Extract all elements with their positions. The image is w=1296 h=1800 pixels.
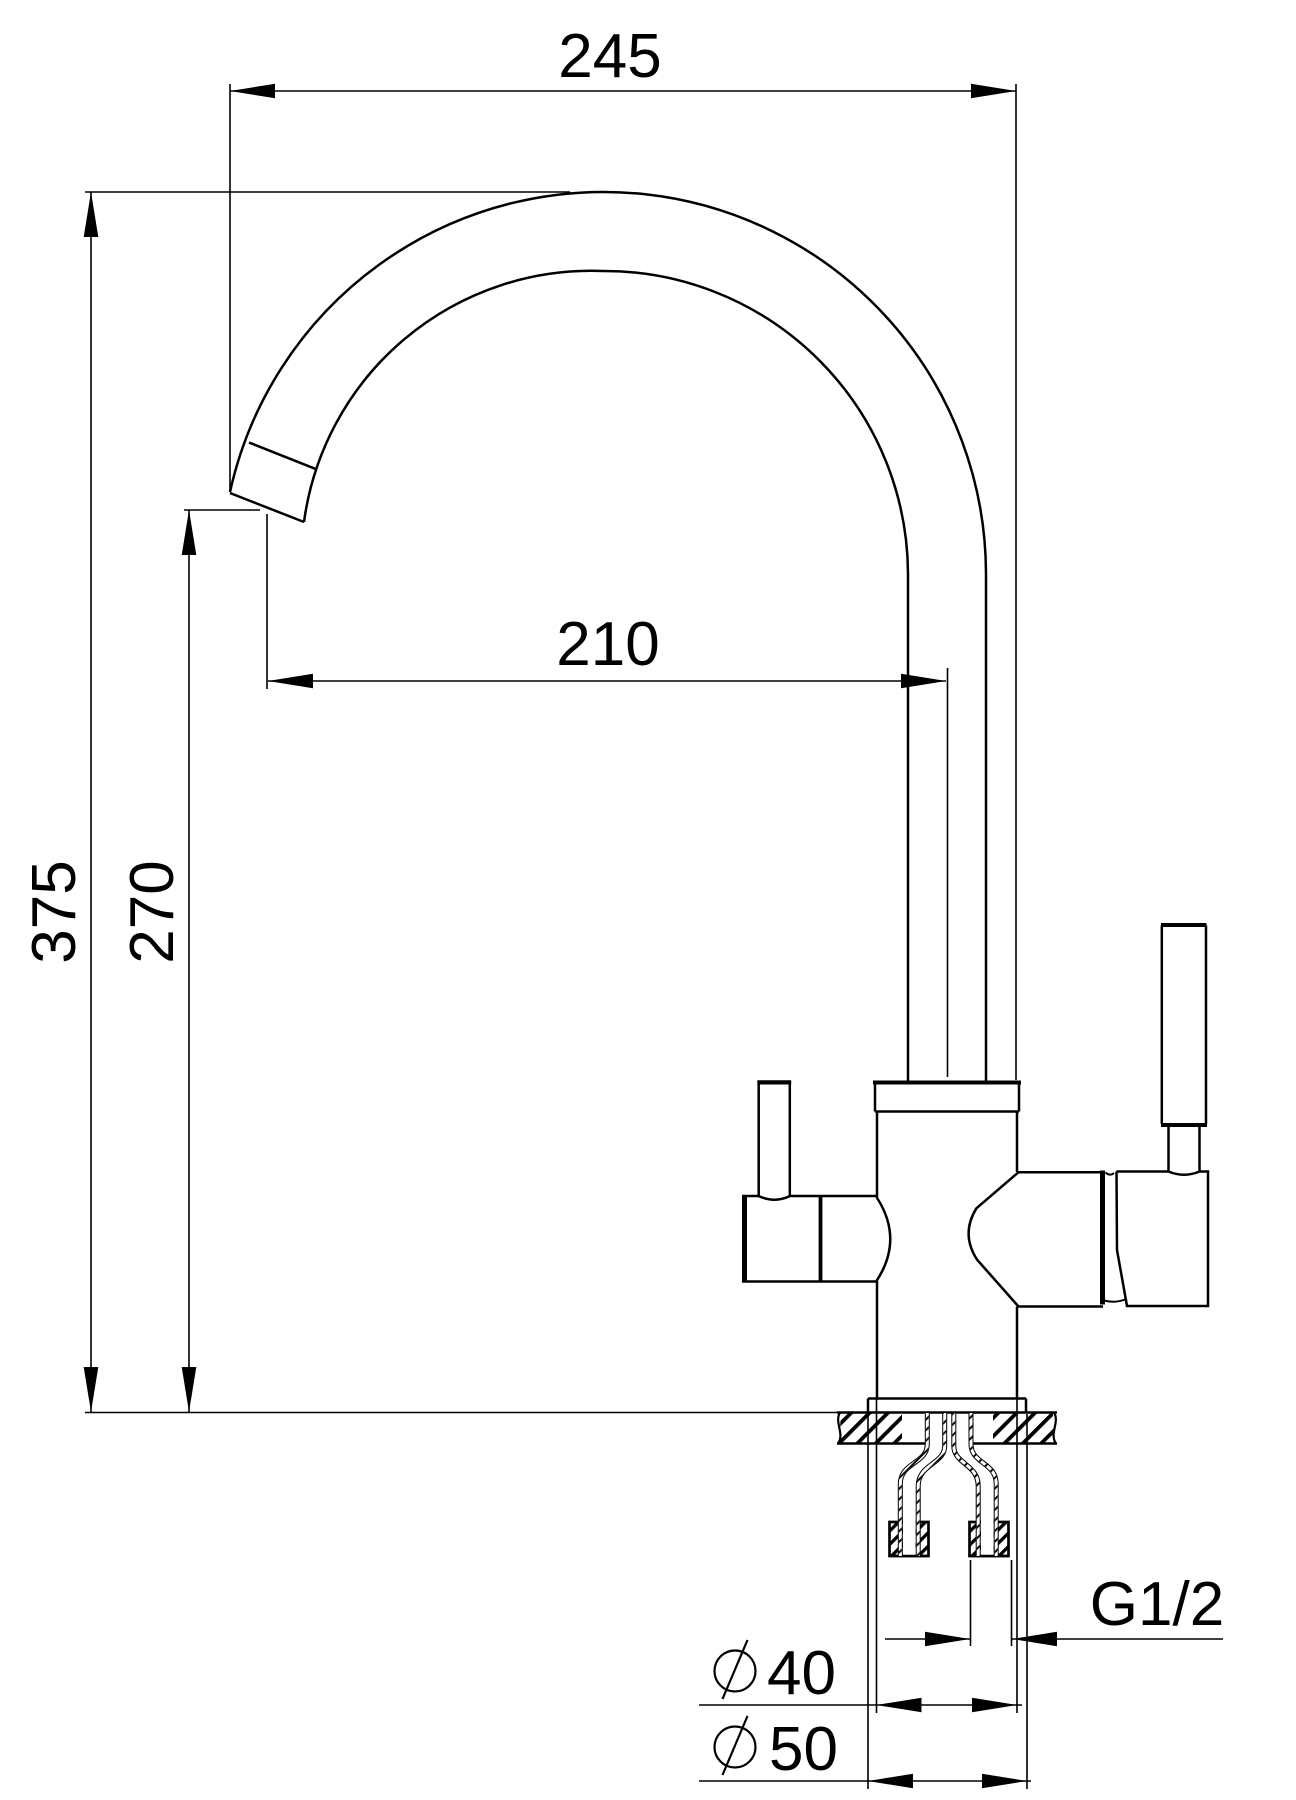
svg-text:40: 40	[767, 1639, 836, 1708]
svg-text:270: 270	[118, 860, 187, 963]
svg-text:245: 245	[558, 22, 661, 91]
svg-text:375: 375	[20, 860, 89, 963]
svg-text:50: 50	[769, 1715, 838, 1784]
svg-text:210: 210	[556, 610, 659, 679]
svg-text:G1/2: G1/2	[1090, 1570, 1224, 1639]
